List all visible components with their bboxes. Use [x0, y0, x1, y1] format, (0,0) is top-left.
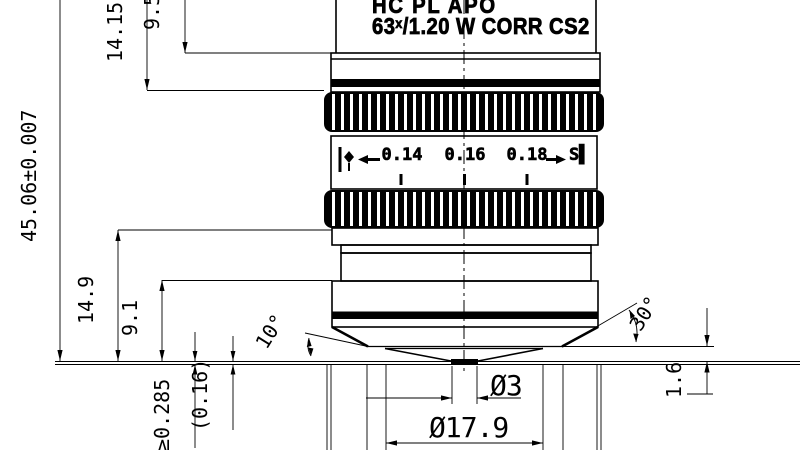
- cover-glass-lines: [55, 362, 800, 365]
- dimension-parfocal-length: 45.06±0.007: [19, 110, 39, 242]
- scale-ticks: [401, 174, 527, 185]
- dimension-14-9: 14.9: [76, 276, 96, 324]
- scale-value-018: 0.18: [507, 147, 548, 164]
- dimension-9-1: 9.1: [120, 300, 140, 336]
- scale-value-014: 0.14: [382, 147, 423, 164]
- dimension-front-lens-diameter: Ø3: [490, 372, 522, 400]
- coverslip-icon: S▌: [569, 147, 589, 164]
- objective-technical-drawing: HC PL APO 63x/1.20 W CORR CS2 0.14 0.16 …: [0, 0, 800, 450]
- dimension-cover-glass: (0.16): [190, 359, 210, 431]
- nose-cone: [332, 327, 598, 361]
- engraving-magnification: 63: [372, 13, 395, 39]
- dimension-1-6: 1.6: [664, 362, 684, 398]
- scale-pointer-icon: [340, 147, 354, 172]
- scale-value-016: 0.16: [445, 147, 486, 164]
- dimension-9-5: 9.5: [142, 0, 162, 30]
- dimension-14-15: 14.15: [105, 2, 125, 62]
- dimension-nose-diameter: Ø17.9: [429, 414, 508, 442]
- engraving-spec-rest: /1.20 W CORR CS2: [403, 13, 590, 39]
- engraving-spec-line: 63x/1.20 W CORR CS2: [372, 15, 590, 38]
- black-bands: [331, 79, 600, 319]
- engraving-mag-x: x: [395, 15, 402, 31]
- dimension-working-distance: ≥0.285: [152, 379, 172, 450]
